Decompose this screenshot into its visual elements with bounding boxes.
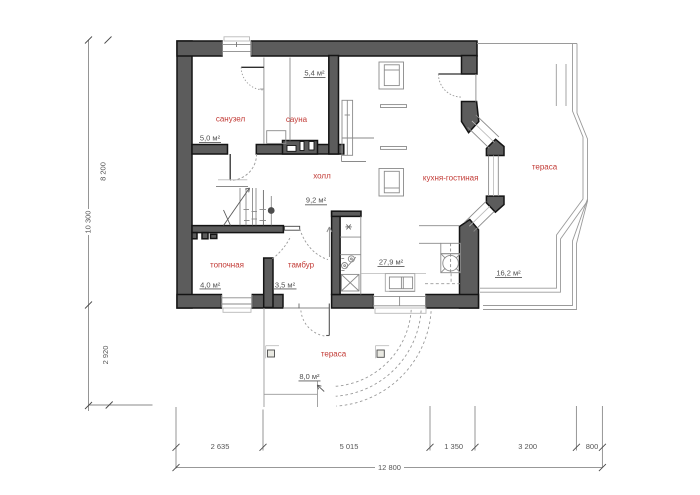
- svg-text:1 350: 1 350: [444, 442, 463, 451]
- svg-text:4,0 м²: 4,0 м²: [200, 281, 221, 290]
- svg-text:5 015: 5 015: [340, 442, 359, 451]
- svg-text:8,0 м²: 8,0 м²: [299, 372, 320, 381]
- svg-text:12 800: 12 800: [378, 463, 401, 472]
- svg-text:тераса: тераса: [321, 350, 347, 359]
- svg-text:10 300: 10 300: [84, 211, 93, 234]
- svg-text:800: 800: [586, 442, 599, 451]
- svg-text:3 200: 3 200: [518, 442, 537, 451]
- svg-text:сауна: сауна: [286, 115, 308, 124]
- svg-text:санузел: санузел: [216, 115, 246, 124]
- svg-text:5,0 м²: 5,0 м²: [200, 133, 221, 142]
- svg-text:9,2 м²: 9,2 м²: [306, 196, 327, 205]
- svg-text:5,4 м²: 5,4 м²: [304, 69, 325, 78]
- svg-text:холл: холл: [313, 172, 331, 181]
- svg-text:2 920: 2 920: [101, 346, 110, 365]
- svg-text:8 200: 8 200: [99, 162, 108, 181]
- svg-text:тамбур: тамбур: [288, 261, 315, 270]
- svg-text:16,2 м²: 16,2 м²: [496, 269, 521, 278]
- svg-text:тераса: тераса: [532, 163, 558, 172]
- svg-text:топочная: топочная: [210, 261, 244, 270]
- svg-text:кухня-гостиная: кухня-гостиная: [423, 174, 479, 183]
- svg-text:2 635: 2 635: [211, 442, 230, 451]
- svg-text:3,5 м²: 3,5 м²: [275, 281, 296, 290]
- svg-text:27,9 м²: 27,9 м²: [379, 257, 404, 266]
